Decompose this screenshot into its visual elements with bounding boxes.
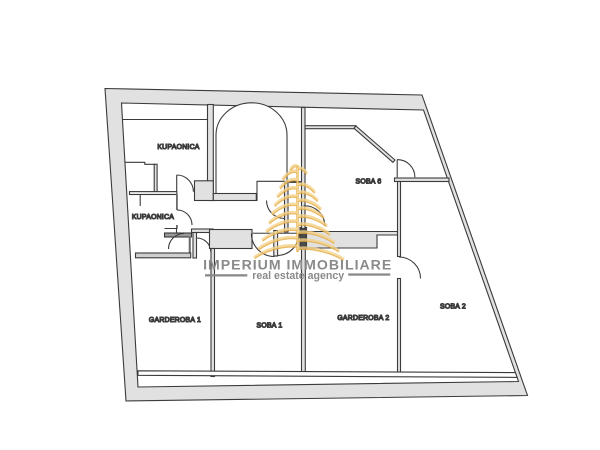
- svg-text:SOBA 1: SOBA 1: [256, 323, 282, 330]
- svg-text:KUPAONICA: KUPAONICA: [157, 144, 199, 151]
- svg-text:SOBA 2: SOBA 2: [440, 304, 466, 311]
- svg-text:SOBA 6: SOBA 6: [355, 179, 381, 186]
- svg-text:KUPAONICA: KUPAONICA: [132, 214, 174, 221]
- svg-text:GARDEROBA 2: GARDEROBA 2: [337, 315, 389, 322]
- svg-text:GARDEROBA 1: GARDEROBA 1: [149, 317, 201, 324]
- svg-text:real estate agency: real estate agency: [252, 270, 344, 282]
